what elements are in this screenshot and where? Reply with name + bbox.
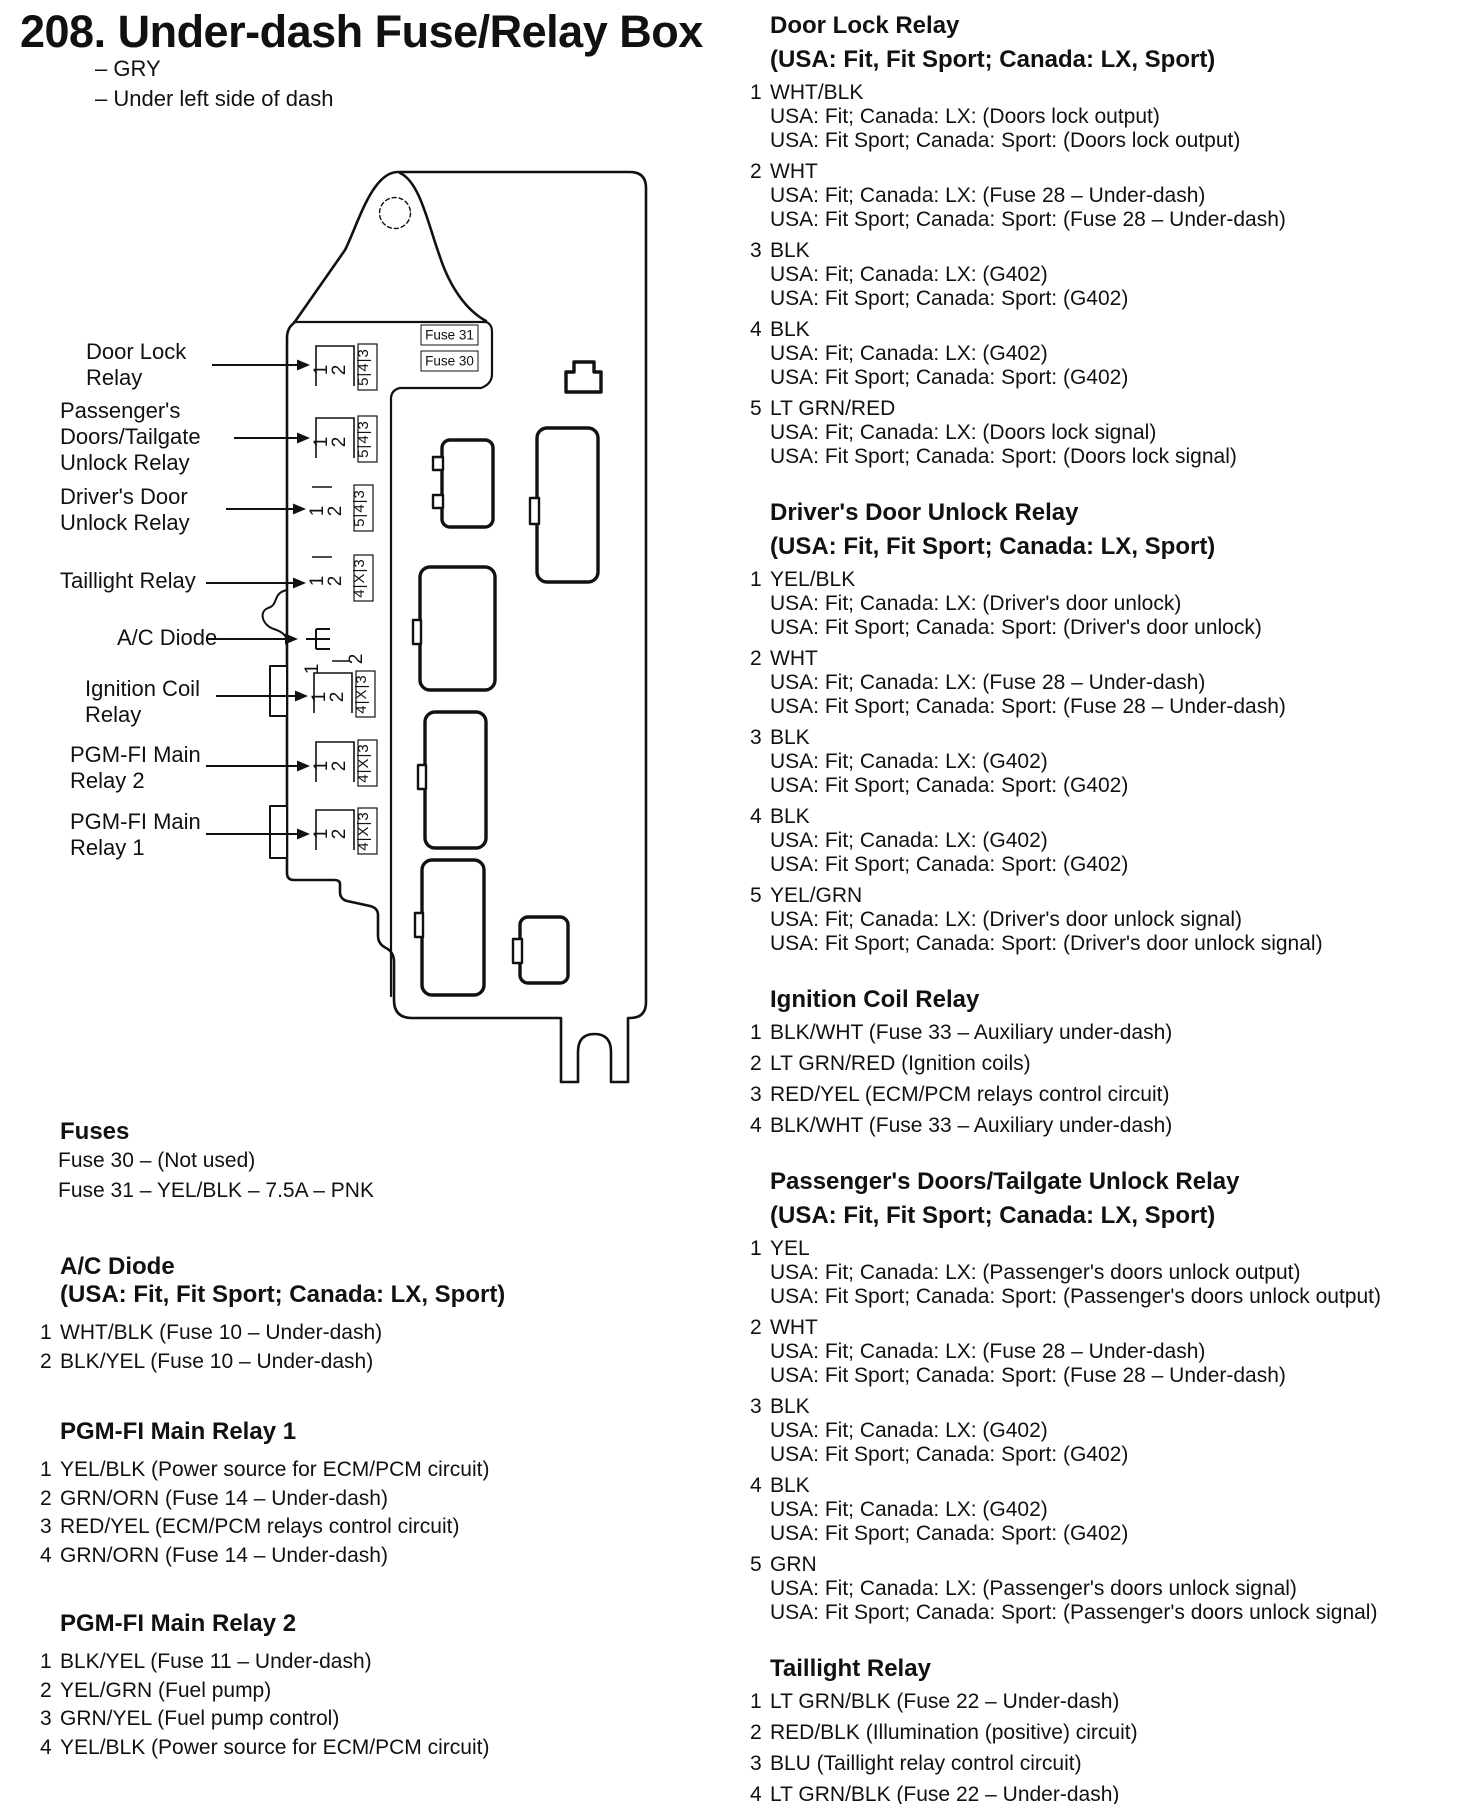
pin-number: 4 [40, 1542, 60, 1571]
connector-cavity-lower-1-bump [418, 765, 426, 789]
ac-diode-symbol [306, 629, 330, 649]
callout-label: Door Lock [86, 339, 187, 364]
pin-number: 2 [750, 1316, 770, 1388]
left-tab-1 [270, 666, 287, 716]
fuse-relay-box-diagram: Fuse 31Fuse 30 Door LockRelay125|4|3Pass… [0, 0, 700, 1110]
pin-number: 2 [750, 160, 770, 232]
variant-detail: USA: Fit; Canada: LX: (Driver's door unl… [770, 908, 1464, 932]
pin-list: 1BLK/YEL (Fuse 11 – Under-dash)2YEL/GRN … [40, 1648, 680, 1762]
pin-row: 3RED/YEL (ECM/PCM relays control circuit… [750, 1083, 1464, 1107]
connector-tooth-1 [433, 457, 443, 470]
wire-color: BLK/WHT (Fuse 33 – Auxiliary under-dash) [770, 1021, 1464, 1045]
callout-door-lock-relay: Door LockRelay125|4|3 [86, 339, 377, 390]
wire-color: WHT/BLK [770, 81, 1464, 105]
connector-cavity-small-bottom [520, 917, 568, 983]
callout-label: PGM-FI Main [70, 742, 201, 767]
pin-number-2: 2 [325, 576, 346, 587]
wire-color: WHT/BLK (Fuse 10 – Under-dash) [60, 1319, 680, 1348]
pin-description: BLKUSA: Fit; Canada: LX: (G402)USA: Fit … [770, 318, 1464, 390]
pin-description: YELUSA: Fit; Canada: LX: (Passenger's do… [770, 1237, 1464, 1309]
pin-number: 1 [750, 1690, 770, 1714]
pin-number-2: 2 [329, 365, 350, 376]
pin-row: 2LT GRN/RED (Ignition coils) [750, 1052, 1464, 1076]
callout-label: Taillight Relay [60, 568, 196, 593]
wire-color: RED/BLK (Illumination (positive) circuit… [770, 1721, 1464, 1745]
pin-number: 1 [750, 81, 770, 153]
connector-cavity-toothed [442, 440, 493, 527]
pin-list: 1WHT/BLK (Fuse 10 – Under-dash)2BLK/YEL … [40, 1319, 680, 1376]
callout-driver-s-door-unlock-relay: Driver's DoorUnlock Relay125|4|3 [60, 484, 373, 535]
pin-row: 1LT GRN/BLK (Fuse 22 – Under-dash) [750, 1690, 1464, 1714]
connector-cavity-mid-bump [413, 620, 421, 644]
section-heading: Taillight Relay [770, 1655, 1464, 1683]
section-heading: (USA: Fit, Fit Sport; Canada: LX, Sport) [770, 533, 1464, 561]
fuse-label: Fuse 30 [425, 354, 474, 369]
pin-number-2: 2 [329, 829, 350, 840]
fuse-line: Fuse 30 – (Not used) [58, 1146, 680, 1176]
pin-row: 3BLKUSA: Fit; Canada: LX: (G402)USA: Fit… [750, 1395, 1464, 1467]
section: Driver's Door Unlock Relay(USA: Fit, Fit… [750, 499, 1464, 956]
callout-pgm-fi-main-relay-1: PGM-FI MainRelay 1124|X|3 [70, 808, 377, 860]
wire-color: LT GRN/BLK (Fuse 22 – Under-dash) [770, 1690, 1464, 1714]
callout-label: Relay [85, 702, 141, 727]
callout-arrowhead [293, 578, 306, 589]
pin-row: 1YELUSA: Fit; Canada: LX: (Passenger's d… [750, 1237, 1464, 1309]
callout-label: Relay 2 [70, 768, 145, 793]
wire-color: BLK/WHT (Fuse 33 – Auxiliary under-dash) [770, 1114, 1464, 1138]
pin-number: 2 [40, 1348, 60, 1377]
variant-detail: USA: Fit Sport; Canada: Sport: (G402) [770, 287, 1464, 311]
pin-row: 4LT GRN/BLK (Fuse 22 – Under-dash) [750, 1783, 1464, 1804]
fuse-line: Fuse 31 – YEL/BLK – 7.5A – PNK [58, 1176, 680, 1206]
section: Ignition Coil Relay1BLK/WHT (Fuse 33 – A… [750, 986, 1464, 1138]
section: Door Lock Relay(USA: Fit, Fit Sport; Can… [750, 12, 1464, 469]
wire-color: GRN [770, 1553, 1464, 1577]
section-heading: Door Lock Relay [770, 12, 1464, 40]
callout-arrowhead [297, 761, 310, 772]
pin-number: 1 [40, 1456, 60, 1485]
callout-label: Ignition Coil [85, 676, 200, 701]
variant-detail: USA: Fit; Canada: LX: (G402) [770, 263, 1464, 287]
pin-row: 1WHT/BLK (Fuse 10 – Under-dash) [40, 1319, 680, 1348]
wire-color: LT GRN/RED (Ignition coils) [770, 1052, 1464, 1076]
pin-description: GRN/ORN (Fuse 14 – Under-dash) [60, 1542, 680, 1571]
inner-panel-line [391, 322, 492, 996]
variant-detail: USA: Fit Sport; Canada: Sport: (Passenge… [770, 1285, 1464, 1309]
variant-detail: USA: Fit; Canada: LX: (G402) [770, 342, 1464, 366]
wire-color: WHT [770, 1316, 1464, 1340]
pin-description: RED/YEL (ECM/PCM relays control circuit) [770, 1083, 1464, 1107]
callout-a-c-diode: A/C Diode12 [117, 625, 367, 674]
connector-cavity-lower-1 [425, 712, 486, 848]
wire-color: LT GRN/RED [770, 397, 1464, 421]
pin-row: 2GRN/ORN (Fuse 14 – Under-dash) [40, 1485, 680, 1514]
callout-arrowhead [297, 829, 310, 840]
wire-color: BLK [770, 239, 1464, 263]
section-heading: (USA: Fit, Fit Sport; Canada: LX, Sport) [60, 1281, 680, 1309]
pin-number: 4 [750, 1114, 770, 1138]
pin-number: 4 [750, 1474, 770, 1546]
variant-detail: USA: Fit Sport; Canada: Sport: (G402) [770, 366, 1464, 390]
variant-detail: USA: Fit Sport; Canada: Sport: (G402) [770, 1443, 1464, 1467]
section-heading: Fuses [60, 1118, 680, 1146]
variant-detail: USA: Fit Sport; Canada: Sport: (Doors lo… [770, 129, 1464, 153]
pin-description: BLK/WHT (Fuse 33 – Auxiliary under-dash) [770, 1114, 1464, 1138]
wire-color: RED/YEL (ECM/PCM relays control circuit) [770, 1083, 1464, 1107]
pin-list: 1YELUSA: Fit; Canada: LX: (Passenger's d… [750, 1237, 1464, 1625]
pin-description: YEL/BLK (Power source for ECM/PCM circui… [60, 1456, 680, 1485]
pin-number: 3 [750, 1395, 770, 1467]
pin-row: 5LT GRN/REDUSA: Fit; Canada: LX: (Doors … [750, 397, 1464, 469]
pin-row: 4BLKUSA: Fit; Canada: LX: (G402)USA: Fit… [750, 318, 1464, 390]
pin-row: 4GRN/ORN (Fuse 14 – Under-dash) [40, 1542, 680, 1571]
connector-cavity-small-top [566, 362, 601, 392]
pin-number: 3 [750, 726, 770, 798]
pin-description: YEL/BLK (Power source for ECM/PCM circui… [60, 1734, 680, 1763]
left-tab-2 [270, 806, 287, 858]
pin-list: 1YEL/BLKUSA: Fit; Canada: LX: (Driver's … [750, 568, 1464, 956]
pin-row: 4BLKUSA: Fit; Canada: LX: (G402)USA: Fit… [750, 805, 1464, 877]
pin-number: 3 [750, 1752, 770, 1776]
callout-ignition-coil-relay: Ignition CoilRelay124|X|3 [85, 671, 375, 727]
pin-row: 3RED/YEL (ECM/PCM relays control circuit… [40, 1513, 680, 1542]
pin-number: 1 [750, 1021, 770, 1045]
variant-detail: USA: Fit Sport; Canada: Sport: (G402) [770, 1522, 1464, 1546]
section: PGM-FI Main Relay 21BLK/YEL (Fuse 11 – U… [40, 1610, 680, 1762]
manual-page: 208. Under-dash Fuse/Relay Box – GRY – U… [0, 0, 1472, 1804]
mounting-hole [380, 198, 411, 229]
wire-color: BLK [770, 1474, 1464, 1498]
pin-number-2: 2 [329, 761, 350, 772]
callout-arrowhead [297, 433, 310, 444]
pin-number-2: 2 [346, 654, 367, 665]
pin-description: BLK/YEL (Fuse 10 – Under-dash) [60, 1348, 680, 1377]
variant-detail: USA: Fit; Canada: LX: (Doors lock output… [770, 105, 1464, 129]
section: PGM-FI Main Relay 11YEL/BLK (Power sourc… [40, 1418, 680, 1570]
pin-row: 2BLK/YEL (Fuse 10 – Under-dash) [40, 1348, 680, 1377]
pin-description: GRN/YEL (Fuel pump control) [60, 1705, 680, 1734]
section: Taillight Relay1LT GRN/BLK (Fuse 22 – Un… [750, 1655, 1464, 1804]
pin-row: 4BLKUSA: Fit; Canada: LX: (G402)USA: Fit… [750, 1474, 1464, 1546]
section-heading: (USA: Fit, Fit Sport; Canada: LX, Sport) [770, 46, 1464, 74]
ear-right-edge [400, 173, 486, 321]
pin-description: BLKUSA: Fit; Canada: LX: (G402)USA: Fit … [770, 1474, 1464, 1546]
pin-description: BLKUSA: Fit; Canada: LX: (G402)USA: Fit … [770, 1395, 1464, 1467]
pin-description: BLKUSA: Fit; Canada: LX: (G402)USA: Fit … [770, 805, 1464, 877]
fuse-label: Fuse 31 [425, 328, 474, 343]
pin-row: 2WHTUSA: Fit; Canada: LX: (Fuse 28 – Und… [750, 647, 1464, 719]
callout-label: Relay [86, 365, 142, 390]
callout-arrowhead [295, 691, 308, 702]
wire-color: YEL/BLK (Power source for ECM/PCM circui… [60, 1456, 680, 1485]
pin-row: 2WHTUSA: Fit; Canada: LX: (Fuse 28 – Und… [750, 1316, 1464, 1388]
connector-cavity-notch-bump-1 [530, 498, 539, 524]
wire-color: YEL/BLK [770, 568, 1464, 592]
pin-description: BLK/YEL (Fuse 11 – Under-dash) [60, 1648, 680, 1677]
pin-row: 3GRN/YEL (Fuel pump control) [40, 1705, 680, 1734]
variant-detail: USA: Fit Sport; Canada: Sport: (G402) [770, 774, 1464, 798]
pin-description: BLKUSA: Fit; Canada: LX: (G402)USA: Fit … [770, 239, 1464, 311]
variant-detail: USA: Fit; Canada: LX: (G402) [770, 750, 1464, 774]
callout-label: Unlock Relay [60, 510, 190, 535]
pin-number: 2 [750, 647, 770, 719]
callout-label: Relay 1 [70, 835, 145, 860]
wire-color: GRN/ORN (Fuse 14 – Under-dash) [60, 1485, 680, 1514]
pin-row: 1WHT/BLKUSA: Fit; Canada: LX: (Doors loc… [750, 81, 1464, 153]
pin-row: 2YEL/GRN (Fuel pump) [40, 1677, 680, 1706]
wire-color: YEL [770, 1237, 1464, 1261]
pin-number: 5 [750, 397, 770, 469]
pin-row: 1BLK/WHT (Fuse 33 – Auxiliary under-dash… [750, 1021, 1464, 1045]
callout-label: Unlock Relay [60, 450, 190, 475]
wire-color: BLK [770, 805, 1464, 829]
section-heading: (USA: Fit, Fit Sport; Canada: LX, Sport) [770, 1202, 1464, 1230]
callout-label: Passenger's [60, 398, 180, 423]
pin-number: 3 [750, 239, 770, 311]
pin-row: 1YEL/BLKUSA: Fit; Canada: LX: (Driver's … [750, 568, 1464, 640]
wire-color: GRN/ORN (Fuse 14 – Under-dash) [60, 1542, 680, 1571]
connector-cavity-mid [420, 567, 495, 690]
pin-description: RED/BLK (Illumination (positive) circuit… [770, 1721, 1464, 1745]
variant-detail: USA: Fit; Canada: LX: (Fuse 28 – Under-d… [770, 1340, 1464, 1364]
pin-row: 3BLU (Taillight relay control circuit) [750, 1752, 1464, 1776]
pin-number: 5 [750, 1553, 770, 1625]
variant-detail: USA: Fit Sport; Canada: Sport: (Driver's… [770, 616, 1464, 640]
pin-number: 1 [40, 1648, 60, 1677]
section-heading: Driver's Door Unlock Relay [770, 499, 1464, 527]
pin-description: BLKUSA: Fit; Canada: LX: (G402)USA: Fit … [770, 726, 1464, 798]
pin-number-2: 2 [325, 506, 346, 517]
pin-number: 4 [750, 1783, 770, 1804]
variant-detail: USA: Fit; Canada: LX: (G402) [770, 1419, 1464, 1443]
variant-detail: USA: Fit; Canada: LX: (Doors lock signal… [770, 421, 1464, 445]
callout-label: A/C Diode [117, 625, 217, 650]
variant-detail: USA: Fit; Canada: LX: (G402) [770, 829, 1464, 853]
wire-color: WHT [770, 160, 1464, 184]
pin-number: 4 [40, 1734, 60, 1763]
section-heading: PGM-FI Main Relay 2 [60, 1610, 680, 1638]
pin-list: 1BLK/WHT (Fuse 33 – Auxiliary under-dash… [750, 1021, 1464, 1138]
pin-row: 3BLKUSA: Fit; Canada: LX: (G402)USA: Fit… [750, 239, 1464, 311]
connector-tooth-2 [433, 495, 443, 508]
pin-description: WHTUSA: Fit; Canada: LX: (Fuse 28 – Unde… [770, 1316, 1464, 1388]
wire-color: RED/YEL (ECM/PCM relays control circuit) [60, 1513, 680, 1542]
wire-color: BLK [770, 1395, 1464, 1419]
variant-detail: USA: Fit Sport; Canada: Sport: (Passenge… [770, 1601, 1464, 1625]
section: FusesFuse 30 – (Not used)Fuse 31 – YEL/B… [40, 1118, 680, 1206]
variant-detail: USA: Fit Sport; Canada: Sport: (Doors lo… [770, 445, 1464, 469]
variant-detail: USA: Fit Sport; Canada: Sport: (Fuse 28 … [770, 695, 1464, 719]
variant-detail: USA: Fit Sport; Canada: Sport: (Driver's… [770, 932, 1464, 956]
callout-label: Driver's Door [60, 484, 188, 509]
variant-detail: USA: Fit; Canada: LX: (Passenger's doors… [770, 1261, 1464, 1285]
pin-number: 1 [750, 568, 770, 640]
pin-number: 1 [40, 1319, 60, 1348]
pin-row: 1YEL/BLK (Power source for ECM/PCM circu… [40, 1456, 680, 1485]
variant-detail: USA: Fit; Canada: LX: (G402) [770, 1498, 1464, 1522]
wire-color: YEL/BLK (Power source for ECM/PCM circui… [60, 1734, 680, 1763]
pin-number: 2 [750, 1721, 770, 1745]
pin-description: YEL/GRNUSA: Fit; Canada: LX: (Driver's d… [770, 884, 1464, 956]
section-heading: PGM-FI Main Relay 1 [60, 1418, 680, 1446]
variant-detail: USA: Fit; Canada: LX: (Driver's door unl… [770, 592, 1464, 616]
callout-passenger-s-doors-tailgate-unlock-relay: Passenger'sDoors/TailgateUnlock Relay125… [60, 398, 377, 475]
section: Passenger's Doors/Tailgate Unlock Relay(… [750, 1168, 1464, 1625]
pin-number: 4 [750, 805, 770, 877]
pin-row: 5YEL/GRNUSA: Fit; Canada: LX: (Driver's … [750, 884, 1464, 956]
pin-list: 1YEL/BLK (Power source for ECM/PCM circu… [40, 1456, 680, 1570]
callout-taillight-relay: Taillight Relay124|X|3 [60, 555, 373, 601]
wire-color: LT GRN/BLK (Fuse 22 – Under-dash) [770, 1783, 1464, 1804]
pin-description: YEL/BLKUSA: Fit; Canada: LX: (Driver's d… [770, 568, 1464, 640]
pin-description: WHT/BLKUSA: Fit; Canada: LX: (Doors lock… [770, 81, 1464, 153]
pin-row: 2WHTUSA: Fit; Canada: LX: (Fuse 28 – Und… [750, 160, 1464, 232]
pin-number: 2 [750, 1052, 770, 1076]
pin-description: LT GRN/BLK (Fuse 22 – Under-dash) [770, 1783, 1464, 1804]
pin-row: 1BLK/YEL (Fuse 11 – Under-dash) [40, 1648, 680, 1677]
wire-color: YEL/GRN (Fuel pump) [60, 1677, 680, 1706]
pin-number: 5 [750, 884, 770, 956]
pin-description: YEL/GRN (Fuel pump) [60, 1677, 680, 1706]
pin-description: LT GRN/REDUSA: Fit; Canada: LX: (Doors l… [770, 397, 1464, 469]
wire-color: WHT [770, 647, 1464, 671]
pin-row: 3BLKUSA: Fit; Canada: LX: (G402)USA: Fit… [750, 726, 1464, 798]
pin-description: WHTUSA: Fit; Canada: LX: (Fuse 28 – Unde… [770, 647, 1464, 719]
pin-number-2: 2 [329, 437, 350, 448]
wire-color: BLK/YEL (Fuse 10 – Under-dash) [60, 1348, 680, 1377]
pin-description: GRN/ORN (Fuse 14 – Under-dash) [60, 1485, 680, 1514]
variant-detail: USA: Fit; Canada: LX: (Passenger's doors… [770, 1577, 1464, 1601]
connector-cavity-lower-2 [422, 860, 484, 995]
pin-number: 2 [40, 1677, 60, 1706]
wire-color: YEL/GRN [770, 884, 1464, 908]
pin-number: 2 [40, 1485, 60, 1514]
pin-description: WHTUSA: Fit; Canada: LX: (Fuse 28 – Unde… [770, 160, 1464, 232]
connector-cavity-lower-2-bump [415, 913, 423, 937]
pin-description: LT GRN/BLK (Fuse 22 – Under-dash) [770, 1690, 1464, 1714]
pin-description: GRNUSA: Fit; Canada: LX: (Passenger's do… [770, 1553, 1464, 1625]
pin-list: 1LT GRN/BLK (Fuse 22 – Under-dash)2RED/B… [750, 1690, 1464, 1804]
section-heading: Ignition Coil Relay [770, 986, 1464, 1014]
connector-cavity-small-bottom-bump [513, 939, 522, 963]
pin-row: 2RED/BLK (Illumination (positive) circui… [750, 1721, 1464, 1745]
callout-arrowhead [293, 504, 306, 515]
wire-color: BLK/YEL (Fuse 11 – Under-dash) [60, 1648, 680, 1677]
section-heading: Passenger's Doors/Tailgate Unlock Relay [770, 1168, 1464, 1196]
variant-detail: USA: Fit Sport; Canada: Sport: (Fuse 28 … [770, 208, 1464, 232]
variant-detail: USA: Fit; Canada: LX: (Fuse 28 – Under-d… [770, 184, 1464, 208]
section: A/C Diode(USA: Fit, Fit Sport; Canada: L… [40, 1253, 680, 1376]
left-clip [263, 590, 287, 642]
pin-list: 1WHT/BLKUSA: Fit; Canada: LX: (Doors loc… [750, 81, 1464, 469]
pin-description: BLK/WHT (Fuse 33 – Auxiliary under-dash) [770, 1021, 1464, 1045]
pin-number: 3 [40, 1705, 60, 1734]
variant-detail: USA: Fit Sport; Canada: Sport: (G402) [770, 853, 1464, 877]
pin-description: BLU (Taillight relay control circuit) [770, 1752, 1464, 1776]
callout-arrowhead [297, 360, 310, 371]
pin-description: LT GRN/RED (Ignition coils) [770, 1052, 1464, 1076]
wire-color: BLK [770, 318, 1464, 342]
pin-description: WHT/BLK (Fuse 10 – Under-dash) [60, 1319, 680, 1348]
wire-color: BLU (Taillight relay control circuit) [770, 1752, 1464, 1776]
pin-description: RED/YEL (ECM/PCM relays control circuit) [60, 1513, 680, 1542]
callout-arrowhead [285, 634, 298, 645]
wire-color: GRN/YEL (Fuel pump control) [60, 1705, 680, 1734]
pin-number: 1 [750, 1237, 770, 1309]
callout-label: Doors/Tailgate [60, 424, 201, 449]
callout-pgm-fi-main-relay-2: PGM-FI MainRelay 2124|X|3 [70, 740, 377, 793]
connector-cavity-tall-right [537, 428, 598, 582]
pin-number-2: 2 [327, 692, 348, 703]
callout-label: PGM-FI Main [70, 809, 201, 834]
section-heading: A/C Diode [60, 1253, 680, 1281]
variant-detail: USA: Fit Sport; Canada: Sport: (Fuse 28 … [770, 1364, 1464, 1388]
pin-row: 4YEL/BLK (Power source for ECM/PCM circu… [40, 1734, 680, 1763]
box-outline [287, 172, 646, 1082]
right-column: Door Lock Relay(USA: Fit, Fit Sport; Can… [750, 12, 1464, 1804]
variant-detail: USA: Fit; Canada: LX: (Fuse 28 – Under-d… [770, 671, 1464, 695]
pin-number: 4 [750, 318, 770, 390]
pin-number: 3 [40, 1513, 60, 1542]
wire-color: BLK [770, 726, 1464, 750]
pin-row: 5GRNUSA: Fit; Canada: LX: (Passenger's d… [750, 1553, 1464, 1625]
pin-row: 4BLK/WHT (Fuse 33 – Auxiliary under-dash… [750, 1114, 1464, 1138]
pin-number: 3 [750, 1083, 770, 1107]
